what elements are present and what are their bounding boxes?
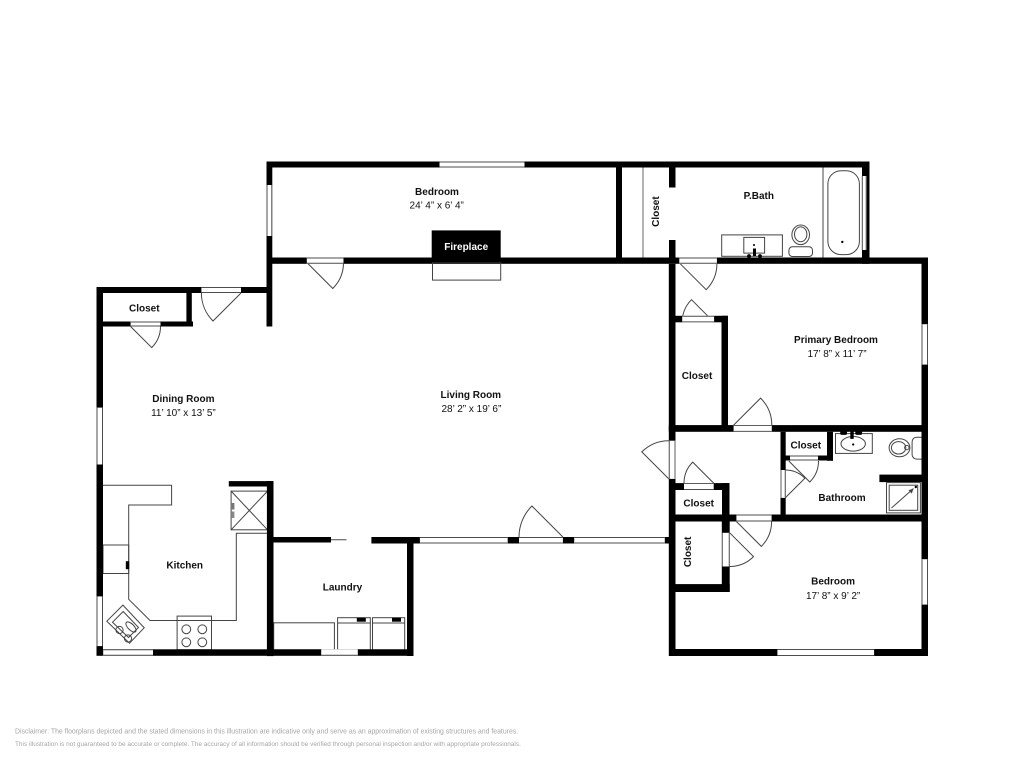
svg-text:This illustration is not guara: This illustration is not guaranteed to b… [15, 741, 521, 748]
svg-text:28’ 2” x 19’ 6”: 28’ 2” x 19’ 6” [441, 404, 501, 415]
svg-text:Kitchen: Kitchen [166, 561, 203, 572]
svg-text:Closet: Closet [651, 196, 662, 227]
svg-text:Disclaimer: The floorplans dep: Disclaimer: The floorplans depicted and … [15, 729, 518, 736]
svg-text:Closet: Closet [791, 441, 822, 452]
svg-text:Laundry: Laundry [323, 583, 363, 594]
svg-text:Dining Room: Dining Room [152, 394, 214, 405]
svg-text:P.Bath: P.Bath [744, 191, 774, 202]
svg-text:Bedroom: Bedroom [811, 577, 855, 588]
svg-text:Primary Bedroom: Primary Bedroom [794, 335, 878, 346]
svg-text:Bathroom: Bathroom [818, 493, 865, 504]
svg-text:17’ 8” x 9’ 2”: 17’ 8” x 9’ 2” [806, 591, 860, 602]
svg-text:24’ 4” x 6’ 4”: 24’ 4” x 6’ 4” [410, 201, 464, 212]
svg-text:Fireplace: Fireplace [444, 242, 488, 253]
svg-text:Closet: Closet [682, 371, 713, 382]
svg-text:Bedroom: Bedroom [415, 187, 459, 198]
svg-text:Living Room: Living Room [441, 390, 502, 401]
svg-text:Closet: Closet [129, 304, 160, 315]
svg-text:Closet: Closet [683, 499, 714, 510]
svg-text:11’ 10” x 13’ 5”: 11’ 10” x 13’ 5” [151, 408, 216, 419]
svg-text:Closet: Closet [683, 536, 694, 567]
svg-text:17’ 8” x 11’ 7”: 17’ 8” x 11’ 7” [807, 349, 866, 360]
